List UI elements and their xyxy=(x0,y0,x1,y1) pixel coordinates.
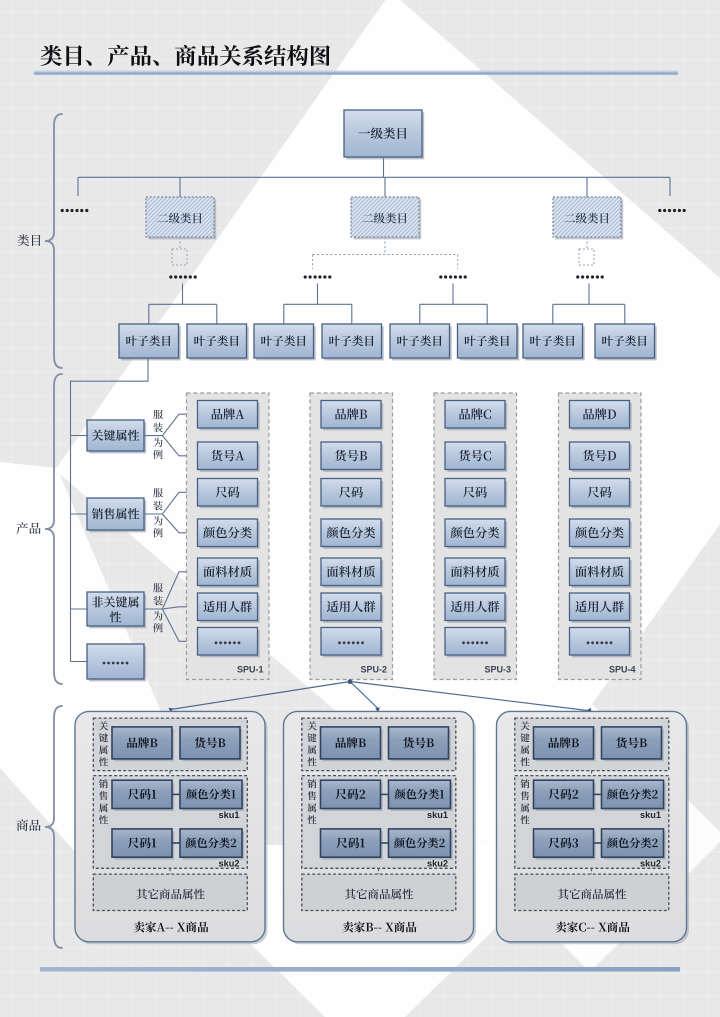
svg-text:sku2: sku2 xyxy=(219,858,240,868)
svg-text:SPU-3: SPU-3 xyxy=(484,665,511,675)
svg-text:sku1: sku1 xyxy=(427,810,448,820)
svg-text:sku1: sku1 xyxy=(219,810,240,820)
svg-text:sku1: sku1 xyxy=(640,810,661,820)
svg-text:SPU-2: SPU-2 xyxy=(360,665,387,675)
svg-text:sku2: sku2 xyxy=(427,858,448,868)
svg-text:SPU-4: SPU-4 xyxy=(609,665,636,675)
svg-text:SPU-1: SPU-1 xyxy=(237,665,264,675)
svg-text:sku2: sku2 xyxy=(640,858,661,868)
